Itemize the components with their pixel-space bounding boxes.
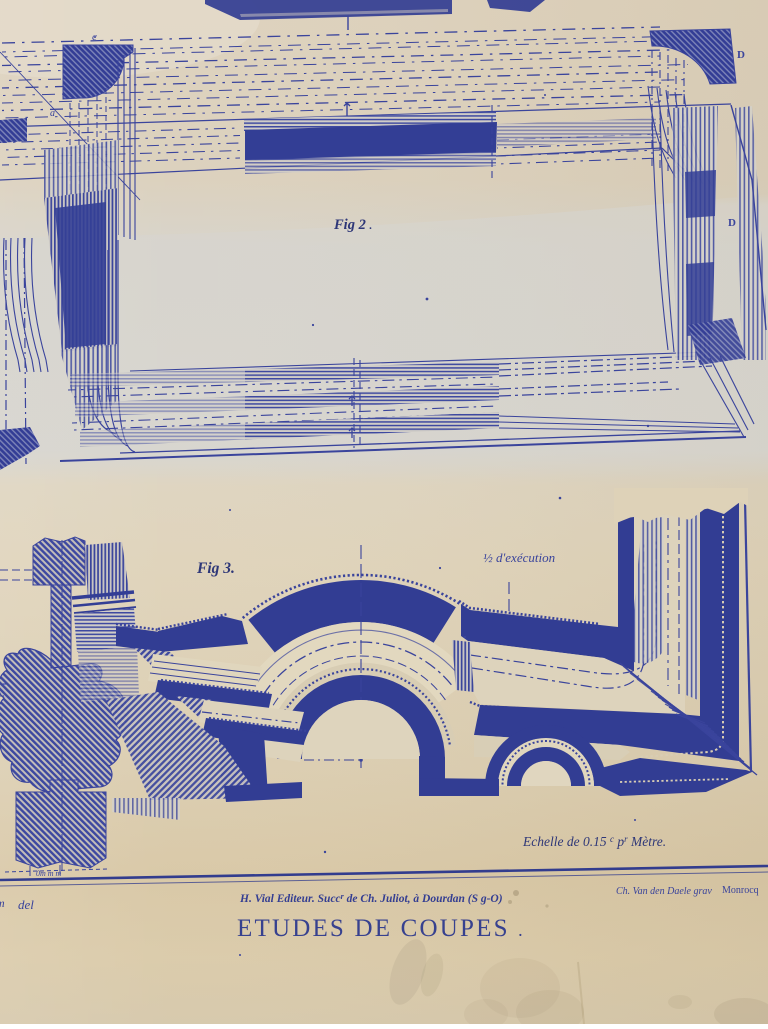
svg-text:del: del — [18, 897, 34, 912]
svg-text:Ch. Van den Daele grav: Ch. Van den Daele grav — [616, 886, 712, 897]
svg-text:0m m m: 0m m m — [36, 869, 62, 878]
svg-text:D: D — [737, 49, 745, 61]
svg-text:m: m — [0, 896, 5, 910]
svg-text:H. Vial Editeur. Succr de Ch.: H. Vial Editeur. Succr de Ch. Juliot, à … — [239, 892, 503, 905]
svg-text:D: D — [728, 217, 736, 229]
svg-text:Fig 2 .: Fig 2 . — [333, 217, 372, 233]
svg-text:Fig 3.: Fig 3. — [196, 560, 235, 577]
svg-text:Monrocq: Monrocq — [722, 885, 759, 896]
svg-text:a: a — [50, 108, 55, 119]
svg-text:Echelle de 0.15 c pr Mètre.: Echelle de 0.15 c pr Mètre. — [522, 834, 666, 849]
svg-text:ETUDES DE COUPES .: ETUDES DE COUPES . — [237, 915, 525, 942]
svg-text:½ d'exécution: ½ d'exécution — [483, 550, 555, 565]
